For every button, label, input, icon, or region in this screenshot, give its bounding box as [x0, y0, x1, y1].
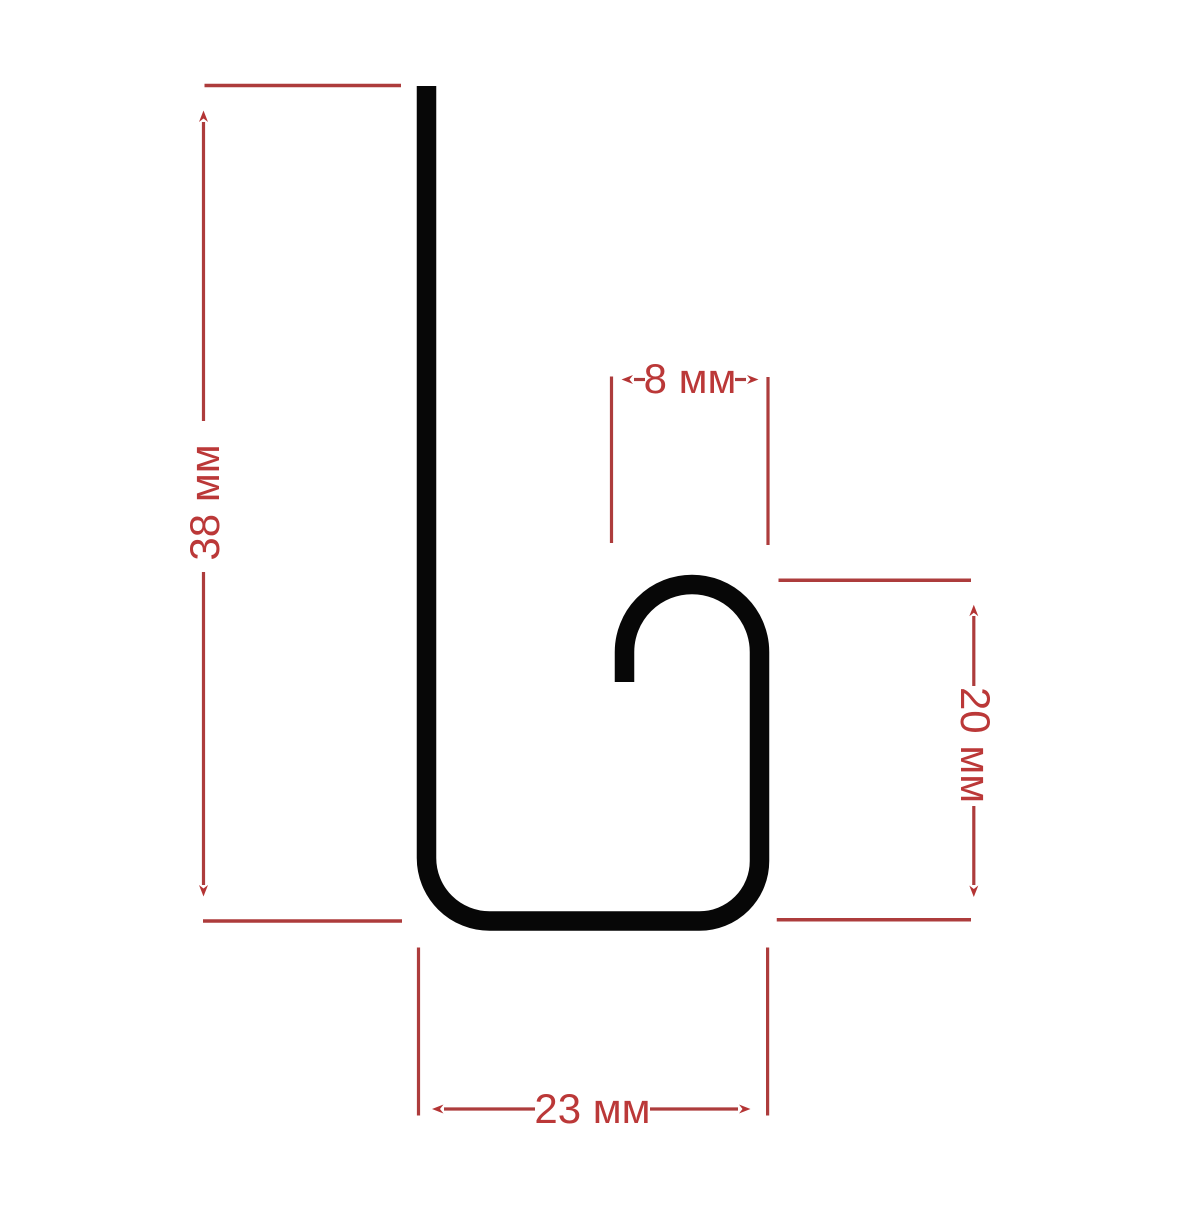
- svg-text:20 мм: 20 мм: [952, 687, 999, 803]
- svg-text:23 мм: 23 мм: [534, 1085, 650, 1132]
- svg-text:8 мм: 8 мм: [644, 355, 737, 402]
- svg-text:38 мм: 38 мм: [181, 444, 228, 560]
